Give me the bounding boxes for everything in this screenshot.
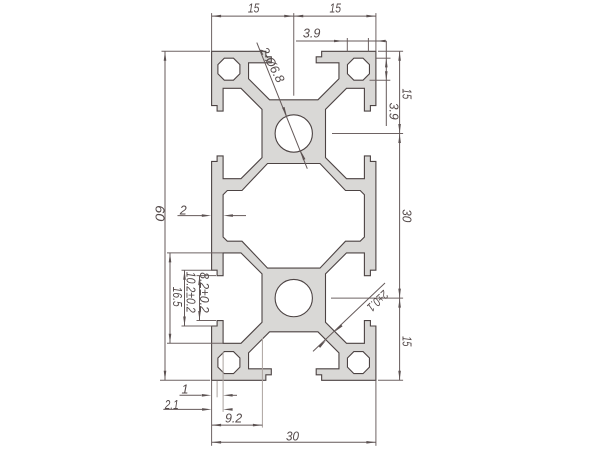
svg-text:2±0.1: 2±0.1: [364, 287, 392, 314]
svg-text:10.2±0.2: 10.2±0.2: [184, 272, 198, 313]
svg-text:1: 1: [182, 383, 189, 397]
svg-text:30: 30: [400, 209, 414, 222]
svg-text:3.9: 3.9: [303, 27, 321, 41]
svg-text:8.2±0.2: 8.2±0.2: [197, 272, 211, 312]
svg-text:2: 2: [179, 203, 187, 217]
svg-text:30: 30: [286, 430, 299, 444]
svg-text:15: 15: [400, 89, 414, 100]
svg-text:2.1: 2.1: [164, 398, 179, 412]
svg-text:2-Ø6.8: 2-Ø6.8: [257, 44, 288, 85]
svg-text:3.9: 3.9: [387, 103, 401, 120]
svg-text:15: 15: [400, 336, 414, 346]
svg-text:16.5: 16.5: [170, 287, 184, 307]
svg-text:9.2: 9.2: [225, 412, 242, 426]
svg-text:15: 15: [248, 1, 260, 15]
svg-text:15: 15: [329, 1, 341, 15]
svg-text:60: 60: [153, 205, 167, 221]
